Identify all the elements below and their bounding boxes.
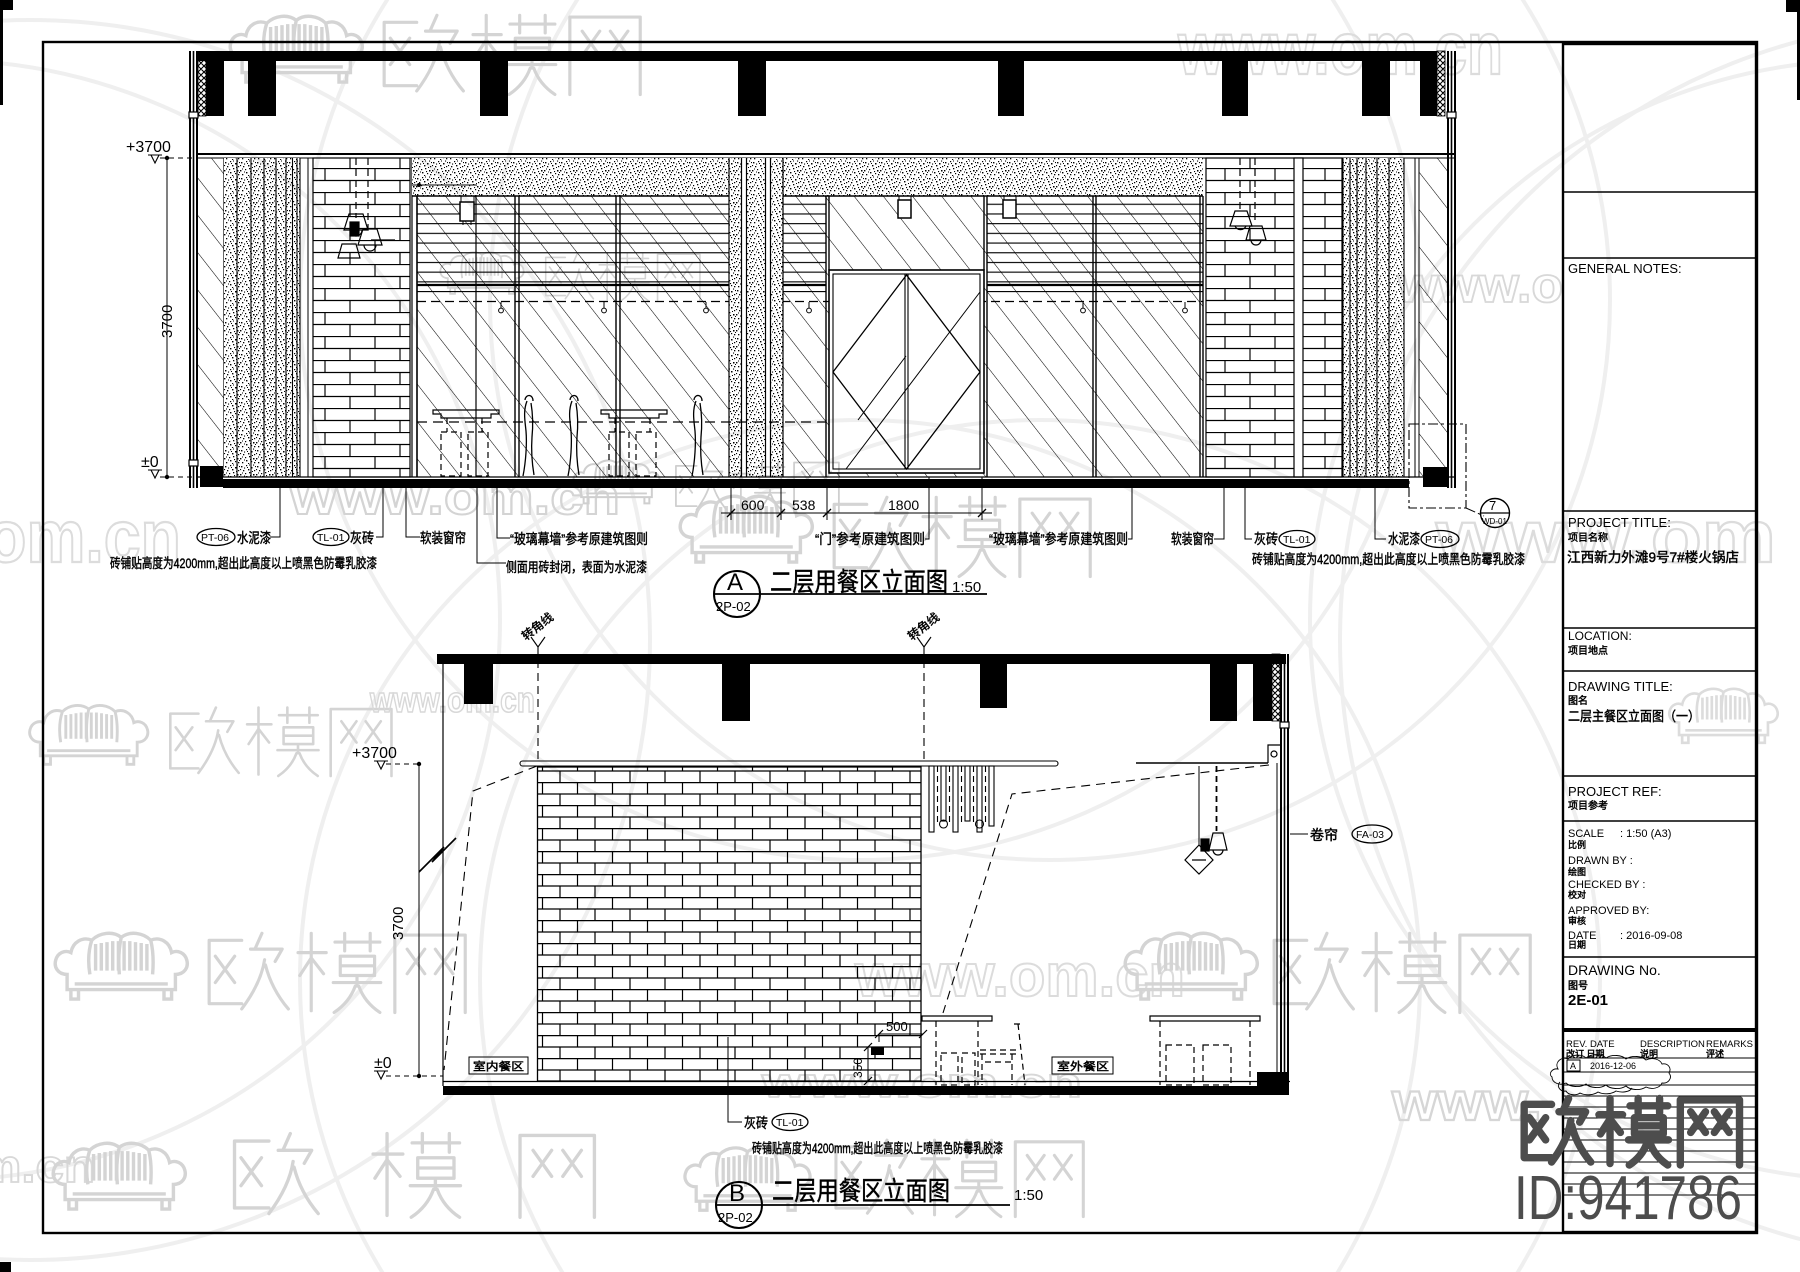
- svg-text:ID:941786: ID:941786: [1514, 1164, 1742, 1233]
- svg-text:GENERAL NOTES:: GENERAL NOTES:: [1568, 261, 1682, 276]
- svg-text:“门”参考原建筑图则: “门”参考原建筑图则: [815, 531, 925, 547]
- svg-text:PROJECT REF:: PROJECT REF:: [1568, 784, 1662, 799]
- svg-text:“玻璃幕墙”参考原建筑图则: “玻璃幕墙”参考原建筑图则: [510, 531, 648, 547]
- svg-text:日期: 日期: [1568, 940, 1586, 950]
- svg-text:B: B: [729, 1180, 745, 1207]
- svg-text:+3700: +3700: [126, 139, 171, 156]
- svg-text:A: A: [727, 569, 743, 596]
- svg-text:TL-01: TL-01: [1283, 534, 1311, 546]
- svg-text:图名: 图名: [1568, 694, 1588, 707]
- svg-text:TL-01: TL-01: [776, 1117, 804, 1129]
- svg-text:A: A: [1570, 1061, 1576, 1071]
- svg-text:LOCATION:: LOCATION:: [1568, 629, 1632, 643]
- svg-text:: 2016-09-08: : 2016-09-08: [1620, 930, 1682, 942]
- svg-text:PT-06: PT-06: [201, 532, 229, 544]
- svg-text:1:50: 1:50: [1014, 1187, 1043, 1204]
- svg-text:DRAWING TITLE:: DRAWING TITLE:: [1568, 679, 1673, 694]
- svg-text:500: 500: [886, 1019, 908, 1034]
- svg-text:2E-01: 2E-01: [1568, 992, 1608, 1009]
- svg-text:水泥漆: 水泥漆: [237, 530, 271, 546]
- svg-text:评述: 评述: [1706, 1048, 1724, 1059]
- svg-text:www.om: www.om: [1435, 495, 1776, 578]
- svg-text:TL-01: TL-01: [317, 532, 345, 544]
- svg-text:卷帘: 卷帘: [1310, 827, 1338, 843]
- svg-text:±0: ±0: [374, 1055, 392, 1072]
- svg-text:灰砖: 灰砖: [1254, 531, 1278, 547]
- svg-text:绘图: 绘图: [1568, 866, 1586, 877]
- svg-text:DRAWING No.: DRAWING No.: [1568, 962, 1661, 978]
- svg-text:二层用餐区立面图: 二层用餐区立面图: [770, 567, 948, 597]
- svg-text:www.om.cn: www.om.cn: [1177, 7, 1503, 90]
- svg-text:审核: 审核: [1568, 915, 1586, 926]
- svg-text:1800: 1800: [888, 497, 919, 513]
- svg-text:: 1:50 (A3): : 1:50 (A3): [1620, 828, 1671, 840]
- svg-text:www.: www.: [1391, 1072, 1542, 1132]
- svg-text:侧面用砖封闭，表面为水泥漆: 侧面用砖封闭，表面为水泥漆: [506, 560, 647, 575]
- svg-text:2P-02: 2P-02: [718, 1210, 753, 1225]
- svg-text:DRAWN BY :: DRAWN BY :: [1568, 855, 1633, 867]
- svg-text:www.o: www.o: [1397, 257, 1563, 313]
- svg-text:SCALE: SCALE: [1568, 828, 1604, 840]
- svg-text:www.om.cn: www.om.cn: [369, 679, 535, 720]
- svg-text:www.om.cn: www.om.cn: [289, 468, 620, 526]
- svg-text:www.om.cn: www.om.cn: [761, 1059, 1082, 1106]
- svg-text:2016-12-06: 2016-12-06: [1590, 1061, 1636, 1071]
- svg-text:1:50: 1:50: [952, 579, 981, 596]
- svg-text:图号: 图号: [1568, 980, 1588, 992]
- svg-text:灰砖: 灰砖: [744, 1115, 768, 1131]
- svg-text:软装窗帘: 软装窗帘: [420, 530, 466, 546]
- svg-text:2P-02: 2P-02: [716, 599, 751, 614]
- svg-text:3700: 3700: [159, 305, 176, 338]
- svg-text:“玻璃幕墙”参考原建筑图则: “玻璃幕墙”参考原建筑图则: [989, 531, 1128, 547]
- svg-text:om.cn: om.cn: [0, 495, 181, 578]
- svg-text:校对: 校对: [1568, 889, 1586, 900]
- svg-text:±0: ±0: [141, 454, 159, 471]
- svg-text:项目地点: 项目地点: [1568, 644, 1608, 657]
